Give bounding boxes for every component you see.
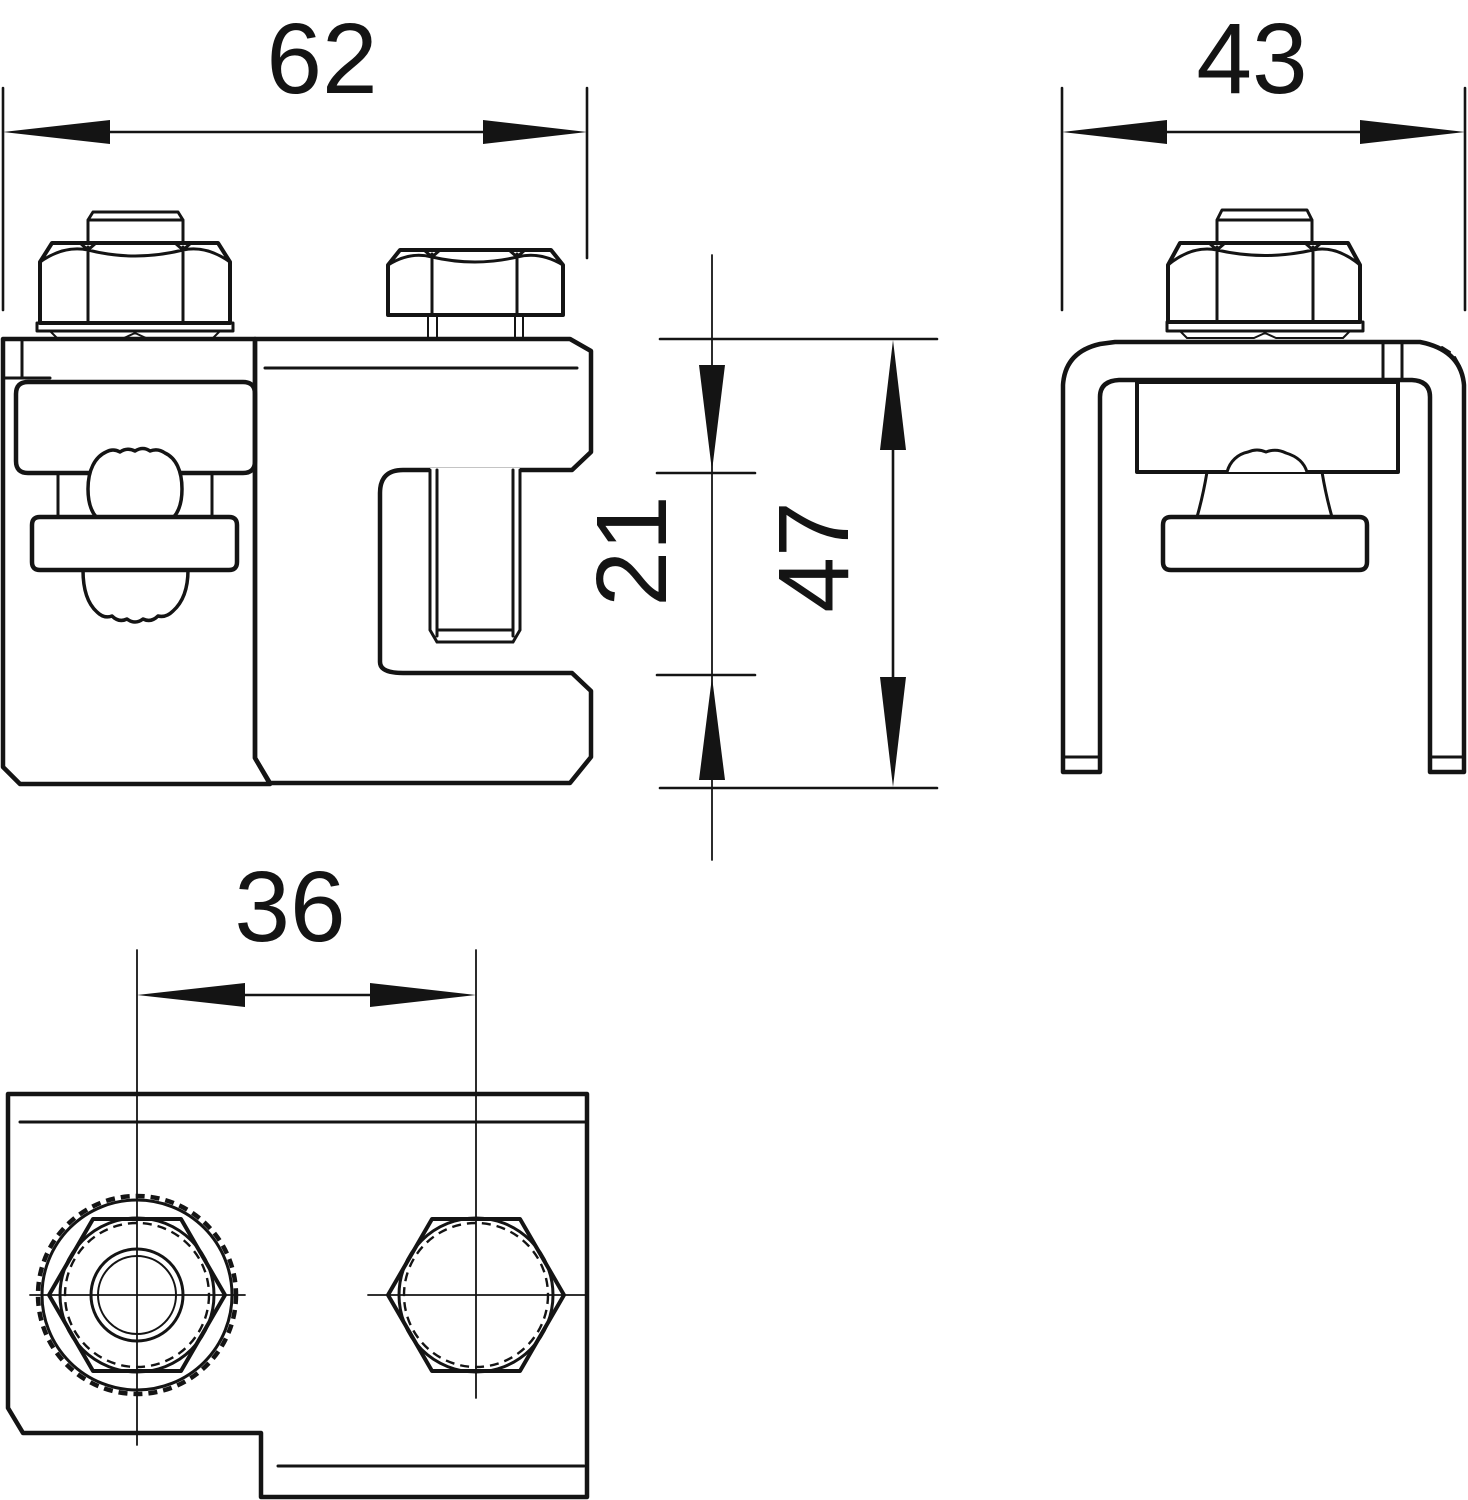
front-rod-mask (430, 468, 520, 643)
dim43-value: 43 (1196, 3, 1307, 115)
dimension-21-47: 21 47 (576, 255, 937, 860)
front-conductor-lower (83, 570, 188, 622)
bottom-plate-inner-edges (20, 1122, 585, 1466)
front-bolt1-nut-facets (40, 243, 230, 323)
dimension-62: 62 (3, 3, 587, 310)
side-bolt-washer (1167, 322, 1363, 331)
technical-drawing: 62 21 47 43 (0, 0, 1468, 1500)
front-view (3, 212, 591, 784)
dim36-value: 36 (234, 851, 345, 963)
bottom-view (8, 950, 587, 1497)
front-bolt1-head (88, 212, 183, 243)
side-bolt-head (1217, 210, 1312, 243)
dim47-value: 47 (758, 501, 870, 612)
dim62-extension-lines (3, 88, 587, 310)
dim62-value: 62 (266, 3, 377, 115)
dimension-36: 36 (137, 851, 476, 1007)
side-pressure-pad (1163, 517, 1367, 570)
front-pressure-pad (32, 517, 237, 570)
front-saddle-step (3, 339, 50, 378)
front-bolt1-washer (37, 323, 233, 331)
front-bolt2-shank (428, 315, 523, 338)
dim21-value: 21 (576, 495, 688, 606)
front-bolt2-nut-facets (388, 250, 563, 315)
side-view (1063, 210, 1464, 772)
front-c-bracket-outline (255, 339, 591, 783)
dimension-43: 43 (1062, 3, 1465, 310)
dim43-extension-lines (1062, 88, 1465, 310)
front-bolt2-nut (388, 250, 563, 315)
side-neck-edges (1197, 472, 1332, 517)
side-top-notch (1383, 342, 1402, 378)
side-bolt-nut-facets (1168, 243, 1360, 322)
side-conductor-dome-fill (1227, 450, 1307, 472)
drawing-page: 62 21 47 43 (0, 0, 1468, 1500)
